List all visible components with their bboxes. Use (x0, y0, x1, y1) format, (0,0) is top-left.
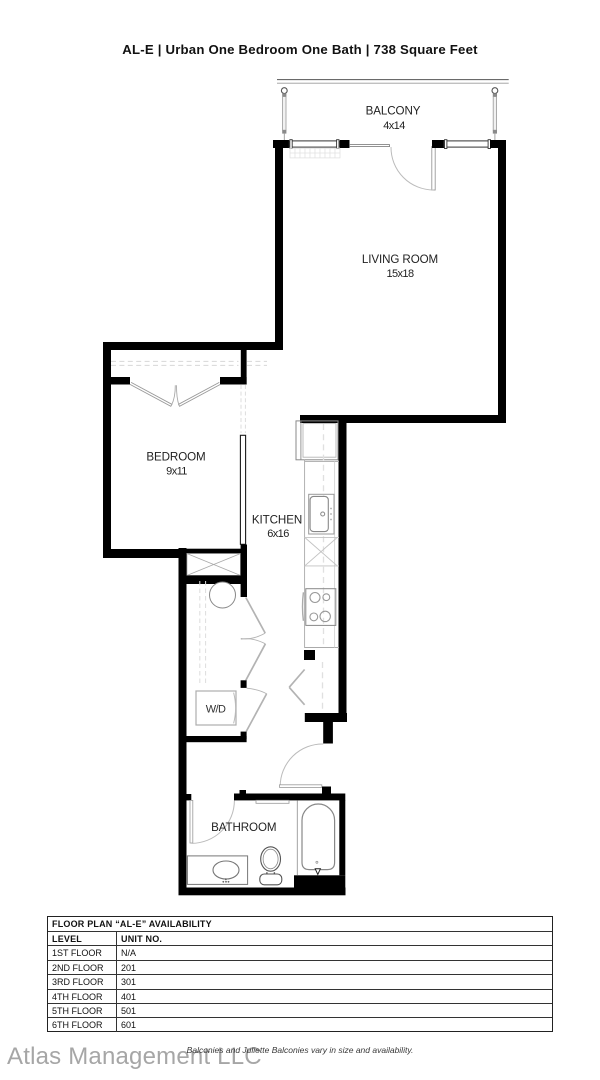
svg-text:KITCHEN: KITCHEN (252, 514, 302, 527)
svg-text:BALCONY: BALCONY (366, 105, 421, 118)
svg-text:4x14: 4x14 (383, 120, 405, 132)
svg-text:15x18: 15x18 (387, 268, 414, 280)
svg-text:BEDROOM: BEDROOM (146, 451, 205, 464)
svg-text:BATHROOM: BATHROOM (211, 821, 276, 834)
svg-text:9x11: 9x11 (166, 466, 187, 478)
svg-text:6x16: 6x16 (267, 528, 289, 540)
svg-text:W/D: W/D (206, 704, 226, 716)
svg-text:LIVING ROOM: LIVING ROOM (362, 253, 438, 266)
